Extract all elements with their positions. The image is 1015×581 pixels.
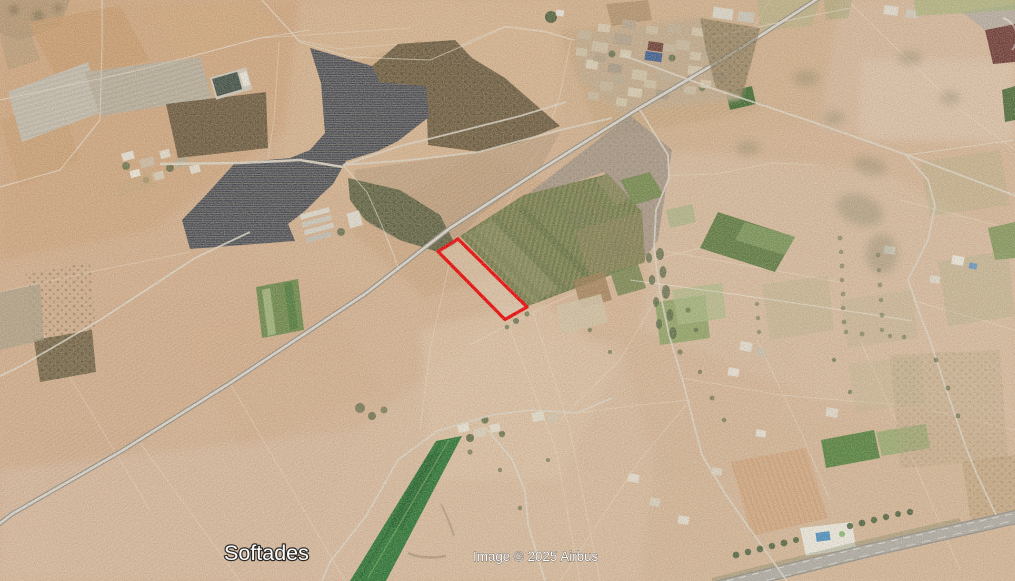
svg-text:Image © 2025 Airbus: Image © 2025 Airbus [473,549,599,564]
svg-text:Softades: Softades [224,541,309,565]
